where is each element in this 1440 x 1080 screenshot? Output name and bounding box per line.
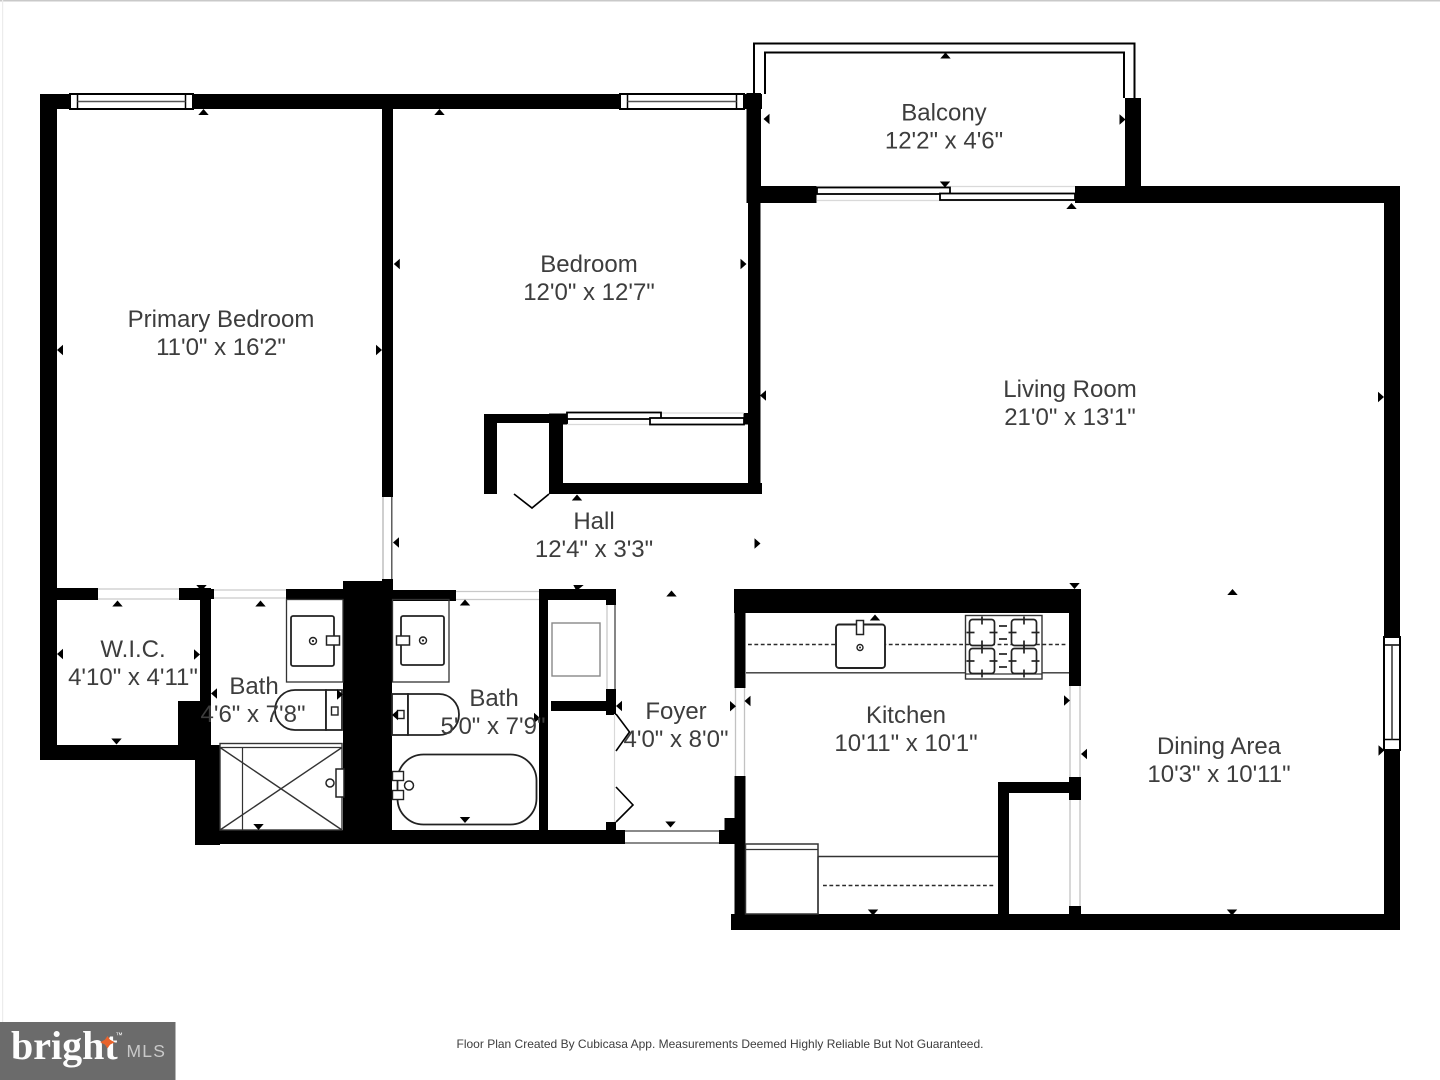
svg-text:21'0" x 13'1": 21'0" x 13'1" xyxy=(1004,404,1136,431)
svg-text:Living Room: Living Room xyxy=(1003,376,1136,403)
svg-text:W.I.C.: W.I.C. xyxy=(100,636,165,663)
svg-text:11'0" x 16'2": 11'0" x 16'2" xyxy=(156,334,286,361)
svg-text:Balcony: Balcony xyxy=(901,100,986,127)
svg-text:10'3" x 10'11": 10'3" x 10'11" xyxy=(1147,761,1290,788)
svg-text:12'0" x 12'7": 12'0" x 12'7" xyxy=(523,279,655,306)
svg-text:Foyer: Foyer xyxy=(645,698,706,725)
svg-text:bright: bright xyxy=(11,1023,118,1068)
svg-text:10'11" x 10'1": 10'11" x 10'1" xyxy=(834,730,977,757)
svg-text:Hall: Hall xyxy=(573,508,614,535)
svg-text:Kitchen: Kitchen xyxy=(866,702,946,729)
svg-text:Bath: Bath xyxy=(469,685,518,712)
svg-text:MLS: MLS xyxy=(127,1041,167,1061)
svg-text:Bedroom: Bedroom xyxy=(540,251,637,278)
svg-text:Dining Area: Dining Area xyxy=(1157,733,1282,760)
svg-text:™: ™ xyxy=(116,1031,124,1040)
svg-text:Primary Bedroom: Primary Bedroom xyxy=(128,306,315,333)
svg-text:12'2" x 4'6": 12'2" x 4'6" xyxy=(885,128,1003,155)
svg-text:12'4" x 3'3": 12'4" x 3'3" xyxy=(535,536,653,563)
svg-text:Floor Plan Created By Cubicasa: Floor Plan Created By Cubicasa App. Meas… xyxy=(457,1037,984,1051)
svg-text:5'0" x 7'9": 5'0" x 7'9" xyxy=(441,713,546,740)
svg-text:4'6" x 7'8": 4'6" x 7'8" xyxy=(201,701,306,728)
svg-text:4'10" x 4'11": 4'10" x 4'11" xyxy=(68,664,198,691)
svg-text:4'0" x 8'0": 4'0" x 8'0" xyxy=(624,726,729,753)
svg-text:Bath: Bath xyxy=(229,673,278,700)
